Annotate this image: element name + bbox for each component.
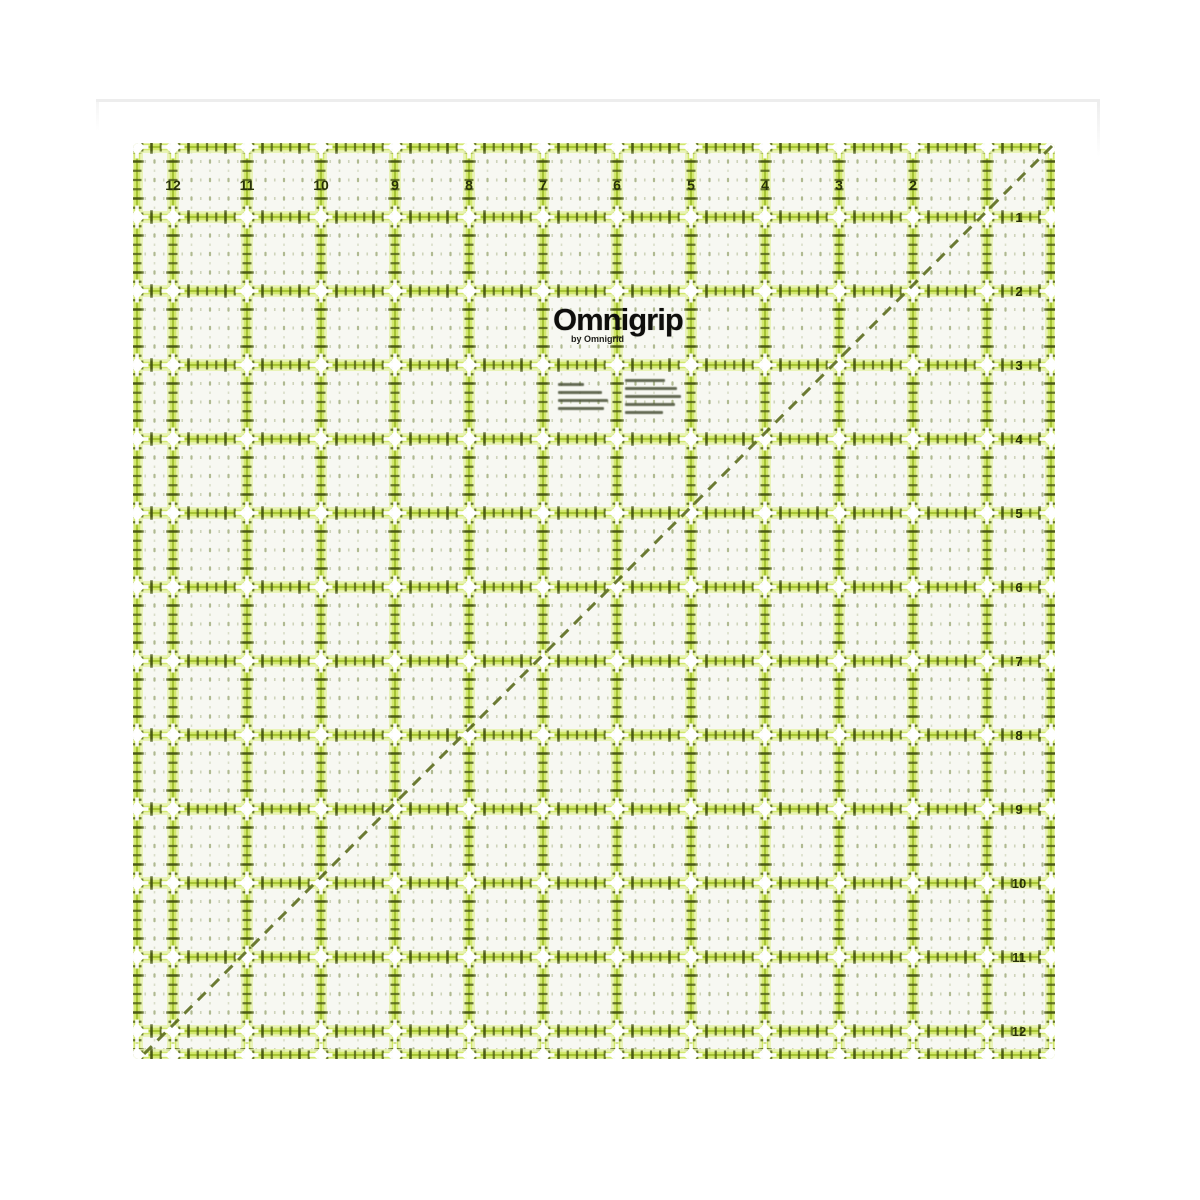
quilting-ruler: 12111098765432123456789101112: [133, 143, 1055, 1059]
fine-print-block-left: [558, 383, 608, 415]
product-photo: 12111098765432123456789101112 Omnigrip b…: [0, 0, 1200, 1200]
right-scale-number: 9: [1015, 802, 1022, 817]
top-scale-number: 11: [240, 177, 255, 193]
top-scale-number: 2: [909, 177, 917, 193]
fine-print-line: [558, 391, 602, 394]
fine-print-line: [625, 411, 663, 414]
top-scale-number: 9: [391, 177, 399, 193]
fine-print-line: [558, 399, 608, 402]
fine-print-line: [625, 379, 665, 382]
right-scale-number: 12: [1012, 1024, 1026, 1039]
top-scale-number: 4: [761, 177, 769, 193]
card-border-right: [1097, 101, 1100, 157]
top-scale-number: 7: [539, 177, 547, 193]
ruler-grid-graphic: 12111098765432123456789101112: [133, 143, 1055, 1059]
right-scale-number: 7: [1015, 654, 1022, 669]
top-scale-number: 10: [313, 177, 329, 193]
top-scale-number: 6: [613, 177, 621, 193]
top-scale-number: 3: [835, 177, 843, 193]
right-scale-number: 4: [1015, 432, 1023, 447]
fine-print-line: [558, 383, 584, 386]
top-scale-number: 5: [687, 177, 695, 193]
right-scale-number: 2: [1015, 284, 1022, 299]
right-scale-number: 3: [1015, 358, 1022, 373]
fine-print-block-right: [625, 379, 681, 419]
right-scale-number: 6: [1015, 580, 1022, 595]
top-scale-number: 8: [465, 177, 473, 193]
right-scale-number: 10: [1012, 876, 1026, 891]
fine-print-line: [558, 407, 604, 410]
fine-print-line: [625, 403, 675, 406]
right-scale-number: 11: [1012, 950, 1026, 965]
right-scale-number: 8: [1015, 728, 1022, 743]
right-scale-number: 5: [1015, 506, 1022, 521]
fine-print-line: [625, 387, 677, 390]
brand-byline: by Omnigrid: [571, 334, 624, 344]
brand-logo: Omnigrip: [553, 302, 693, 338]
card-border-top: [96, 99, 1100, 102]
fine-print-line: [625, 395, 681, 398]
top-scale-number: 12: [165, 177, 181, 193]
card-border-left: [96, 101, 99, 131]
ruler-layers: 12111098765432123456789101112: [133, 143, 1055, 1059]
right-scale-number: 1: [1015, 210, 1022, 225]
